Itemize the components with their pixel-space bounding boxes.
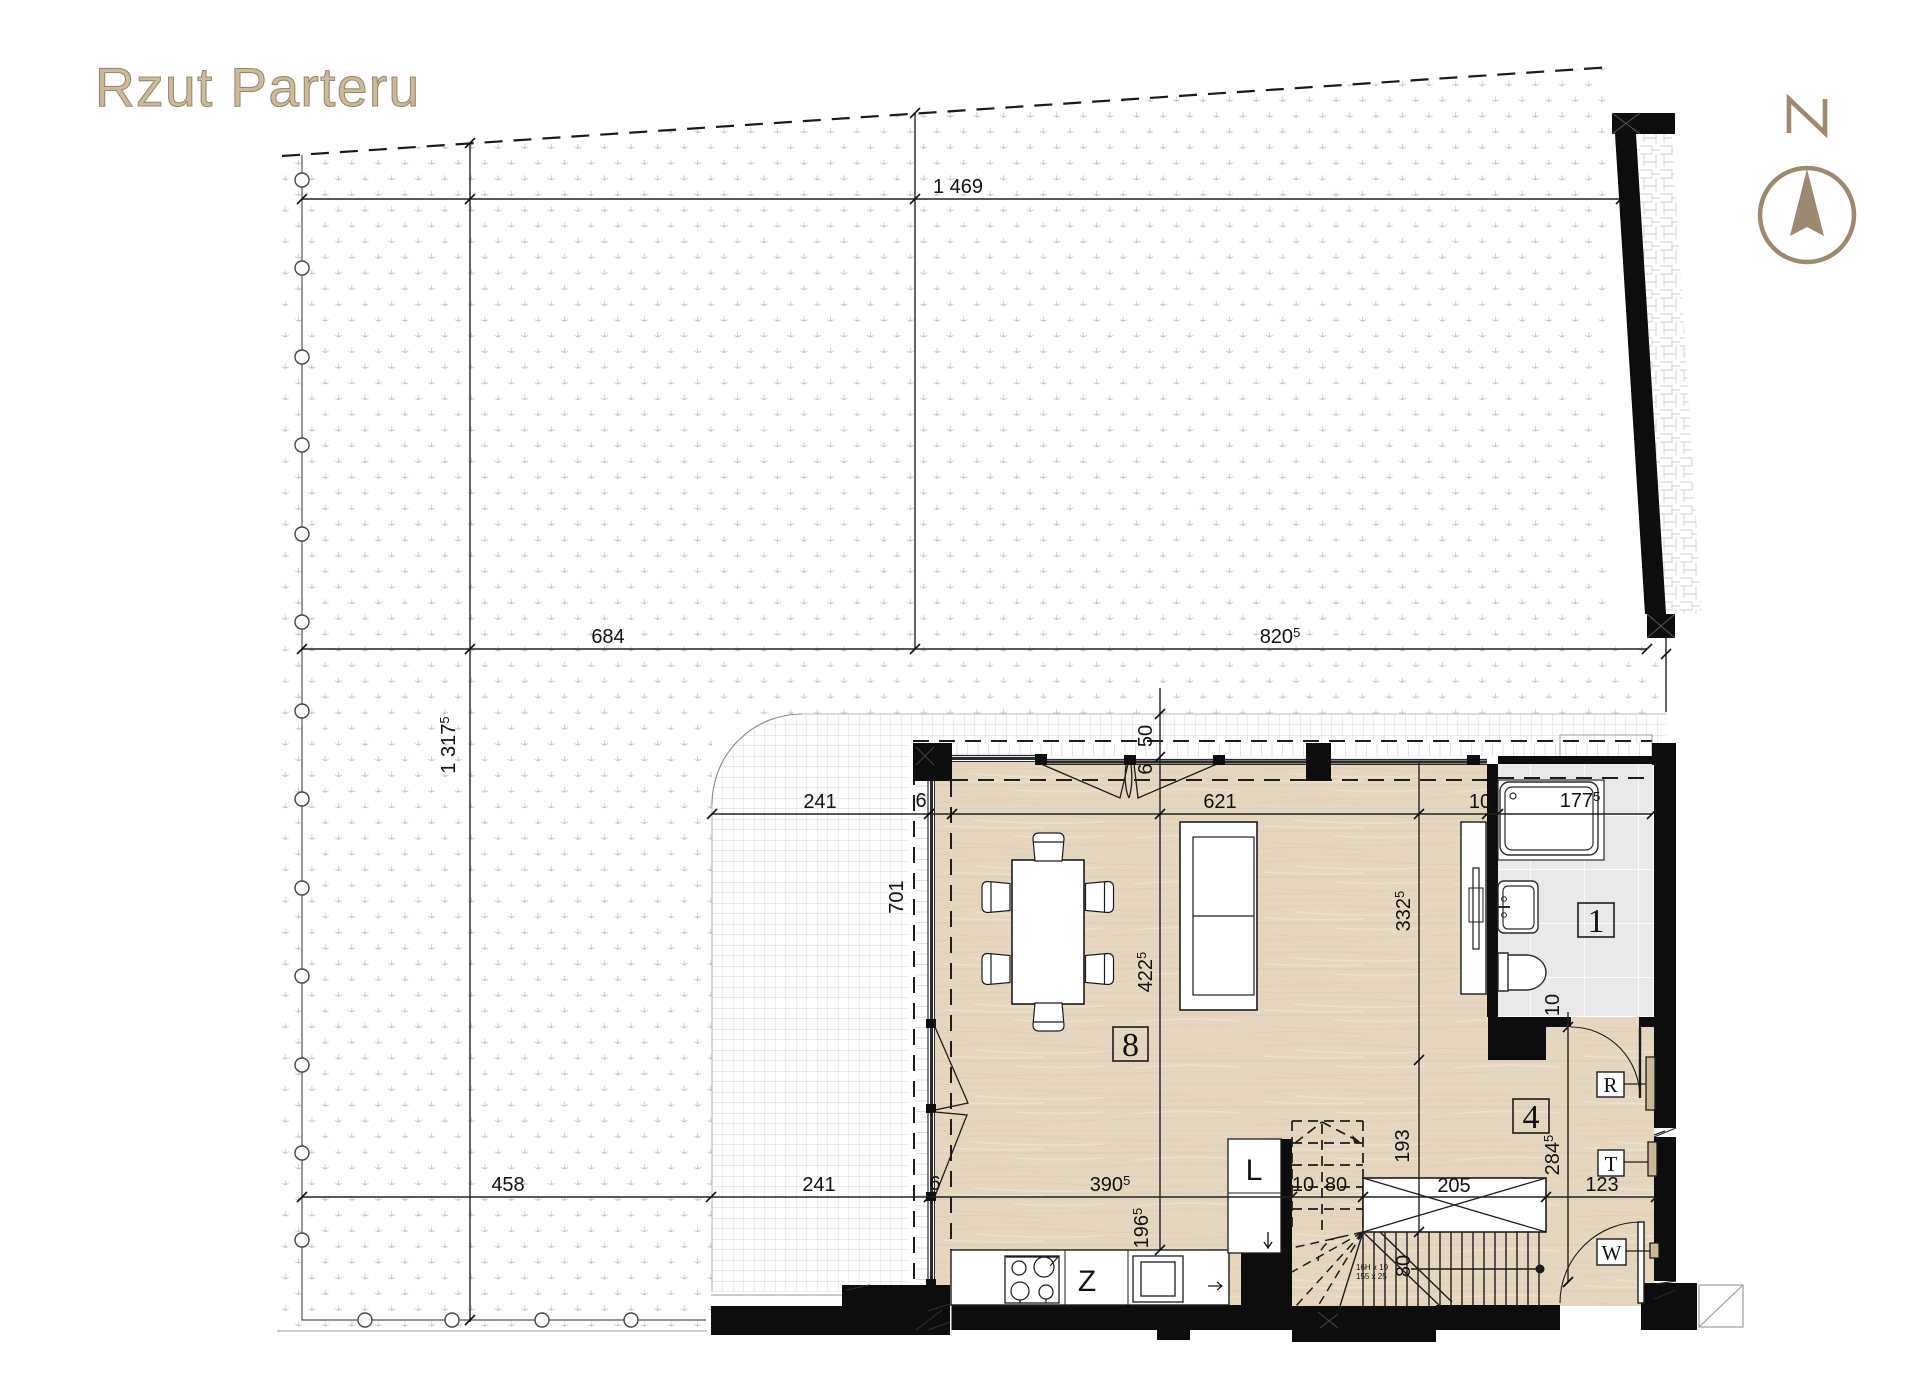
svg-text:10: 10 — [1292, 1174, 1314, 1196]
svg-text:6: 6 — [929, 1173, 940, 1195]
svg-text:L: L — [1246, 1154, 1263, 1187]
svg-text:1 469: 1 469 — [933, 176, 983, 198]
svg-text:193: 193 — [1392, 1129, 1414, 1162]
svg-text:Rzut Parteru: Rzut Parteru — [95, 56, 421, 118]
svg-text:W: W — [1602, 1241, 1622, 1265]
svg-text:6: 6 — [1135, 763, 1157, 774]
svg-text:6: 6 — [915, 790, 926, 812]
svg-text:1 3175: 1 3175 — [437, 716, 460, 773]
svg-text:16H x 19: 16H x 19 — [1356, 1263, 1389, 1272]
svg-text:80: 80 — [1325, 1174, 1347, 1196]
svg-text:80: 80 — [1393, 1255, 1415, 1277]
svg-text:205: 205 — [1437, 1175, 1470, 1197]
svg-text:458: 458 — [491, 1174, 524, 1196]
svg-text:10: 10 — [1469, 791, 1491, 813]
svg-text:241: 241 — [803, 791, 836, 813]
svg-text:621: 621 — [1203, 791, 1236, 813]
svg-text:Z: Z — [1078, 1265, 1096, 1298]
svg-text:123: 123 — [1585, 1174, 1618, 1196]
svg-text:R: R — [1603, 1073, 1617, 1097]
svg-text:684: 684 — [591, 626, 624, 648]
svg-text:50: 50 — [1135, 725, 1157, 747]
svg-text:10: 10 — [1542, 994, 1564, 1016]
svg-text:4: 4 — [1523, 1099, 1540, 1136]
svg-text:701: 701 — [886, 880, 908, 913]
svg-text:155 x 25: 155 x 25 — [1356, 1272, 1387, 1281]
svg-text:1: 1 — [1588, 903, 1605, 940]
svg-text:8: 8 — [1122, 1027, 1139, 1064]
svg-text:241: 241 — [802, 1174, 835, 1196]
svg-text:T: T — [1605, 1152, 1618, 1176]
